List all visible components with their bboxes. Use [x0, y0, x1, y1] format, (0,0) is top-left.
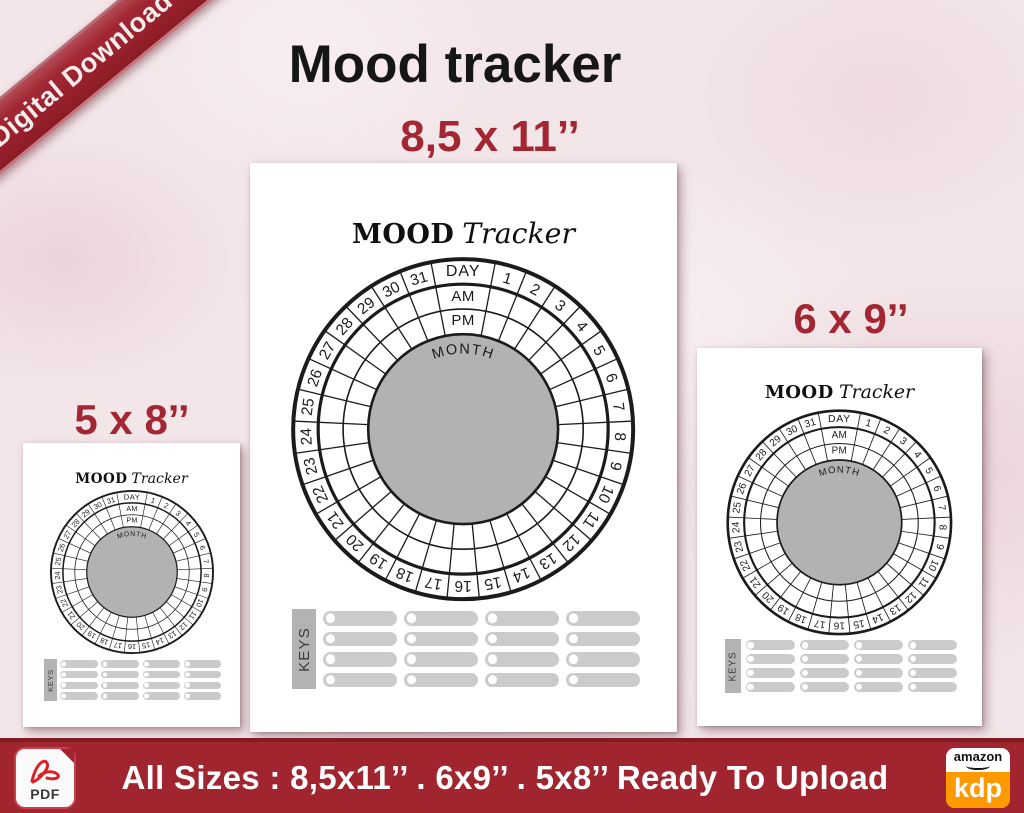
- mood-tracker-wheel: DAYAMPM123456789101112131415161718192021…: [286, 252, 640, 606]
- keys-label: KEYS: [728, 651, 739, 681]
- key-entry-bar: [800, 682, 849, 692]
- key-entry-bar: [746, 668, 795, 678]
- svg-text:2: 2: [882, 424, 892, 437]
- heading-mood: MOOD: [765, 382, 834, 403]
- key-entry-bar: [908, 640, 957, 650]
- key-entry-bar: [143, 660, 180, 668]
- key-entry-dot: [747, 656, 753, 662]
- key-entry-dot: [61, 661, 66, 666]
- key-entry-dot: [407, 614, 417, 624]
- key-entry-bar: [323, 632, 397, 647]
- svg-text:15: 15: [141, 640, 151, 650]
- svg-text:1: 1: [149, 496, 155, 506]
- key-entry-bar: [746, 640, 795, 650]
- key-entry-dot: [747, 642, 753, 648]
- svg-text:7: 7: [609, 401, 627, 412]
- page-heading: MOODTracker: [250, 217, 677, 250]
- key-entry-dot: [185, 694, 190, 699]
- svg-text:AM: AM: [126, 505, 137, 513]
- keys-label-box: KEYS: [44, 659, 56, 701]
- svg-text:16: 16: [127, 642, 135, 651]
- key-entry-dot: [856, 670, 862, 676]
- key-entry-bar: [101, 682, 138, 690]
- svg-text:9: 9: [606, 460, 625, 472]
- keys-grid: [323, 609, 640, 689]
- key-entry-dot: [856, 656, 862, 662]
- key-entry-dot: [856, 642, 862, 648]
- svg-text:3: 3: [173, 509, 182, 519]
- key-entry-bar: [323, 652, 397, 667]
- key-entry-dot: [185, 661, 190, 666]
- key-entry-dot: [747, 670, 753, 676]
- keys-grid: [746, 639, 958, 693]
- keys-label: KEYS: [46, 669, 55, 692]
- key-entry-bar: [184, 671, 221, 679]
- svg-text:3: 3: [552, 297, 569, 316]
- key-entry-bar: [184, 682, 221, 690]
- svg-text:23: 23: [301, 456, 322, 477]
- page-heading: MOODTracker: [697, 381, 982, 403]
- size-label-5x8: 5 x 8’’: [74, 396, 189, 444]
- svg-text:8: 8: [611, 432, 628, 441]
- key-entry-dot: [61, 683, 66, 688]
- key-entry-bar: [60, 682, 97, 690]
- svg-text:31: 31: [105, 495, 115, 506]
- svg-text:AM: AM: [452, 288, 475, 305]
- key-entry-dot: [185, 672, 190, 677]
- page-6x9: MOODTrackerDAYAMPM1234567891011121314151…: [697, 348, 982, 726]
- footer-sizes-text: All Sizes : 8,5x11’’ . 6x9’’ . 5x8’’ Rea…: [74, 759, 936, 797]
- keys-label-box: KEYS: [725, 639, 741, 693]
- key-entry-bar: [143, 671, 180, 679]
- svg-text:9: 9: [933, 542, 945, 550]
- key-entry-bar: [746, 682, 795, 692]
- pdf-file-icon: PDF: [16, 749, 74, 807]
- svg-text:15: 15: [852, 616, 866, 629]
- keys-label: KEYS: [296, 627, 313, 672]
- key-entry-dot: [488, 634, 498, 644]
- heading-tracker: Tracker: [131, 471, 187, 487]
- svg-text:2: 2: [162, 501, 170, 511]
- key-entry-dot: [407, 634, 417, 644]
- heading-tracker: Tracker: [462, 217, 575, 250]
- pdf-label: PDF: [16, 786, 74, 802]
- svg-text:8: 8: [937, 524, 948, 531]
- key-entry-dot: [144, 661, 149, 666]
- key-entry-dot: [910, 684, 916, 690]
- key-entry-dot: [103, 661, 108, 666]
- svg-text:5: 5: [922, 465, 935, 476]
- svg-text:8: 8: [201, 573, 210, 578]
- svg-text:7: 7: [201, 559, 210, 564]
- key-entry-dot: [802, 670, 808, 676]
- key-entry-bar: [800, 654, 849, 664]
- mood-tracker-wheel: DAYAMPM123456789101112131415161718192021…: [723, 406, 956, 639]
- svg-text:DAY: DAY: [446, 263, 481, 280]
- key-entry-dot: [802, 684, 808, 690]
- main-title: Mood tracker: [289, 34, 622, 95]
- svg-text:26: 26: [735, 481, 749, 496]
- key-entry-bar: [854, 640, 903, 650]
- svg-text:16: 16: [833, 619, 845, 630]
- key-entry-dot: [103, 694, 108, 699]
- svg-text:16: 16: [455, 577, 472, 594]
- amazon-kdp-logo: amazon kdp: [946, 748, 1010, 808]
- key-entry-bar: [323, 673, 397, 688]
- svg-text:1: 1: [864, 417, 873, 429]
- svg-text:24: 24: [731, 521, 743, 533]
- mood-tracker-wheel: DAYAMPM123456789101112131415161718192021…: [47, 487, 217, 657]
- keys-section: KEYS: [292, 609, 640, 689]
- page-5x8: MOODTrackerDAYAMPM1234567891011121314151…: [23, 443, 240, 727]
- key-entry-dot: [488, 655, 498, 665]
- size-label-6x9: 6 x 9’’: [793, 295, 908, 343]
- svg-text:17: 17: [424, 573, 444, 593]
- key-entry-bar: [908, 668, 957, 678]
- svg-text:5: 5: [191, 531, 201, 539]
- svg-text:5: 5: [589, 343, 608, 359]
- key-entry-dot: [747, 684, 753, 690]
- amazon-wordmark: amazon: [946, 748, 1010, 772]
- key-entry-dot: [488, 614, 498, 624]
- key-entry-bar: [143, 692, 180, 700]
- key-entry-bar: [566, 673, 640, 688]
- key-entry-bar: [485, 673, 559, 688]
- svg-text:31: 31: [409, 268, 430, 289]
- svg-text:4: 4: [573, 318, 592, 336]
- key-entry-bar: [800, 668, 849, 678]
- key-entry-bar: [60, 671, 97, 679]
- svg-text:24: 24: [52, 571, 61, 580]
- keys-section: KEYS: [725, 639, 957, 693]
- key-entry-dot: [103, 672, 108, 677]
- key-entry-dot: [144, 672, 149, 677]
- svg-text:1: 1: [501, 269, 514, 288]
- key-entry-bar: [746, 654, 795, 664]
- key-entry-bar: [404, 632, 478, 647]
- key-entry-bar: [184, 660, 221, 668]
- svg-text:17: 17: [813, 616, 827, 629]
- key-entry-dot: [61, 694, 66, 699]
- key-entry-bar: [101, 660, 138, 668]
- key-entry-bar: [908, 682, 957, 692]
- key-entry-dot: [407, 675, 417, 685]
- promo-image: Mood tracker 8,5 x 11’’MOODTrackerDAYAMP…: [0, 0, 1024, 813]
- svg-text:4: 4: [911, 449, 923, 461]
- acrobat-swirl-icon: [25, 755, 65, 785]
- key-entry-bar: [908, 654, 957, 664]
- svg-text:4: 4: [183, 519, 192, 528]
- page-heading: MOODTracker: [23, 470, 240, 488]
- key-entry-bar: [404, 652, 478, 667]
- key-entry-dot: [326, 614, 336, 624]
- key-entry-dot: [910, 656, 916, 662]
- key-entry-dot: [61, 672, 66, 677]
- key-entry-dot: [488, 675, 498, 685]
- svg-text:25: 25: [731, 501, 744, 514]
- svg-text:17: 17: [112, 640, 122, 650]
- key-entry-dot: [569, 614, 579, 624]
- svg-text:6: 6: [931, 484, 943, 493]
- keys-label-box: KEYS: [292, 609, 316, 689]
- key-entry-bar: [566, 652, 640, 667]
- key-entry-dot: [569, 634, 579, 644]
- key-entry-bar: [854, 682, 903, 692]
- key-entry-bar: [566, 632, 640, 647]
- heading-tracker: Tracker: [839, 381, 914, 403]
- kdp-wordmark: kdp: [946, 772, 1010, 808]
- svg-text:PM: PM: [452, 312, 475, 329]
- keys-section: KEYS: [44, 659, 221, 701]
- footer-bar: PDF All Sizes : 8,5x11’’ . 6x9’’ . 5x8’’…: [0, 738, 1024, 813]
- heading-mood: MOOD: [75, 471, 127, 487]
- key-entry-bar: [404, 611, 478, 626]
- keys-grid: [60, 659, 221, 701]
- svg-text:23: 23: [54, 585, 65, 595]
- key-entry-bar: [566, 611, 640, 626]
- svg-text:PM: PM: [126, 516, 137, 524]
- key-entry-dot: [326, 634, 336, 644]
- svg-text:3: 3: [897, 435, 909, 447]
- page-8-5x11: MOODTrackerDAYAMPM1234567891011121314151…: [250, 163, 677, 732]
- key-entry-bar: [854, 668, 903, 678]
- svg-text:AM: AM: [832, 429, 847, 440]
- key-entry-bar: [101, 671, 138, 679]
- amazon-smile-icon: [966, 762, 990, 770]
- key-entry-dot: [407, 655, 417, 665]
- key-entry-bar: [60, 660, 97, 668]
- key-entry-dot: [103, 683, 108, 688]
- svg-text:6: 6: [197, 544, 207, 551]
- key-entry-bar: [101, 692, 138, 700]
- key-entry-bar: [323, 611, 397, 626]
- key-entry-dot: [569, 675, 579, 685]
- key-entry-dot: [185, 683, 190, 688]
- svg-text:6: 6: [602, 371, 621, 385]
- svg-text:24: 24: [298, 427, 316, 445]
- key-entry-bar: [800, 640, 849, 650]
- key-entry-bar: [485, 652, 559, 667]
- svg-text:25: 25: [299, 397, 318, 416]
- key-entry-dot: [144, 683, 149, 688]
- key-entry-dot: [569, 655, 579, 665]
- svg-text:DAY: DAY: [828, 413, 851, 425]
- key-entry-dot: [910, 642, 916, 648]
- svg-text:26: 26: [305, 367, 327, 389]
- key-entry-dot: [144, 694, 149, 699]
- key-entry-dot: [910, 670, 916, 676]
- svg-text:2: 2: [527, 280, 542, 299]
- heading-mood: MOOD: [352, 219, 454, 250]
- svg-text:25: 25: [53, 557, 63, 566]
- key-entry-bar: [404, 673, 478, 688]
- size-label-8-5x11: 8,5 x 11’’: [400, 112, 579, 162]
- key-entry-bar: [854, 654, 903, 664]
- svg-text:PM: PM: [832, 445, 847, 456]
- svg-text:15: 15: [483, 573, 503, 593]
- key-entry-dot: [802, 642, 808, 648]
- page-fold-corner: [60, 749, 74, 763]
- key-entry-bar: [143, 682, 180, 690]
- key-entry-dot: [802, 656, 808, 662]
- key-entry-bar: [184, 692, 221, 700]
- key-entry-bar: [485, 632, 559, 647]
- svg-text:7: 7: [935, 504, 947, 512]
- svg-text:9: 9: [199, 587, 209, 593]
- key-entry-bar: [485, 611, 559, 626]
- key-entry-dot: [326, 675, 336, 685]
- key-entry-bar: [60, 692, 97, 700]
- svg-text:31: 31: [804, 416, 818, 430]
- key-entry-dot: [856, 684, 862, 690]
- svg-text:DAY: DAY: [123, 492, 140, 501]
- svg-text:23: 23: [733, 539, 746, 553]
- key-entry-dot: [326, 655, 336, 665]
